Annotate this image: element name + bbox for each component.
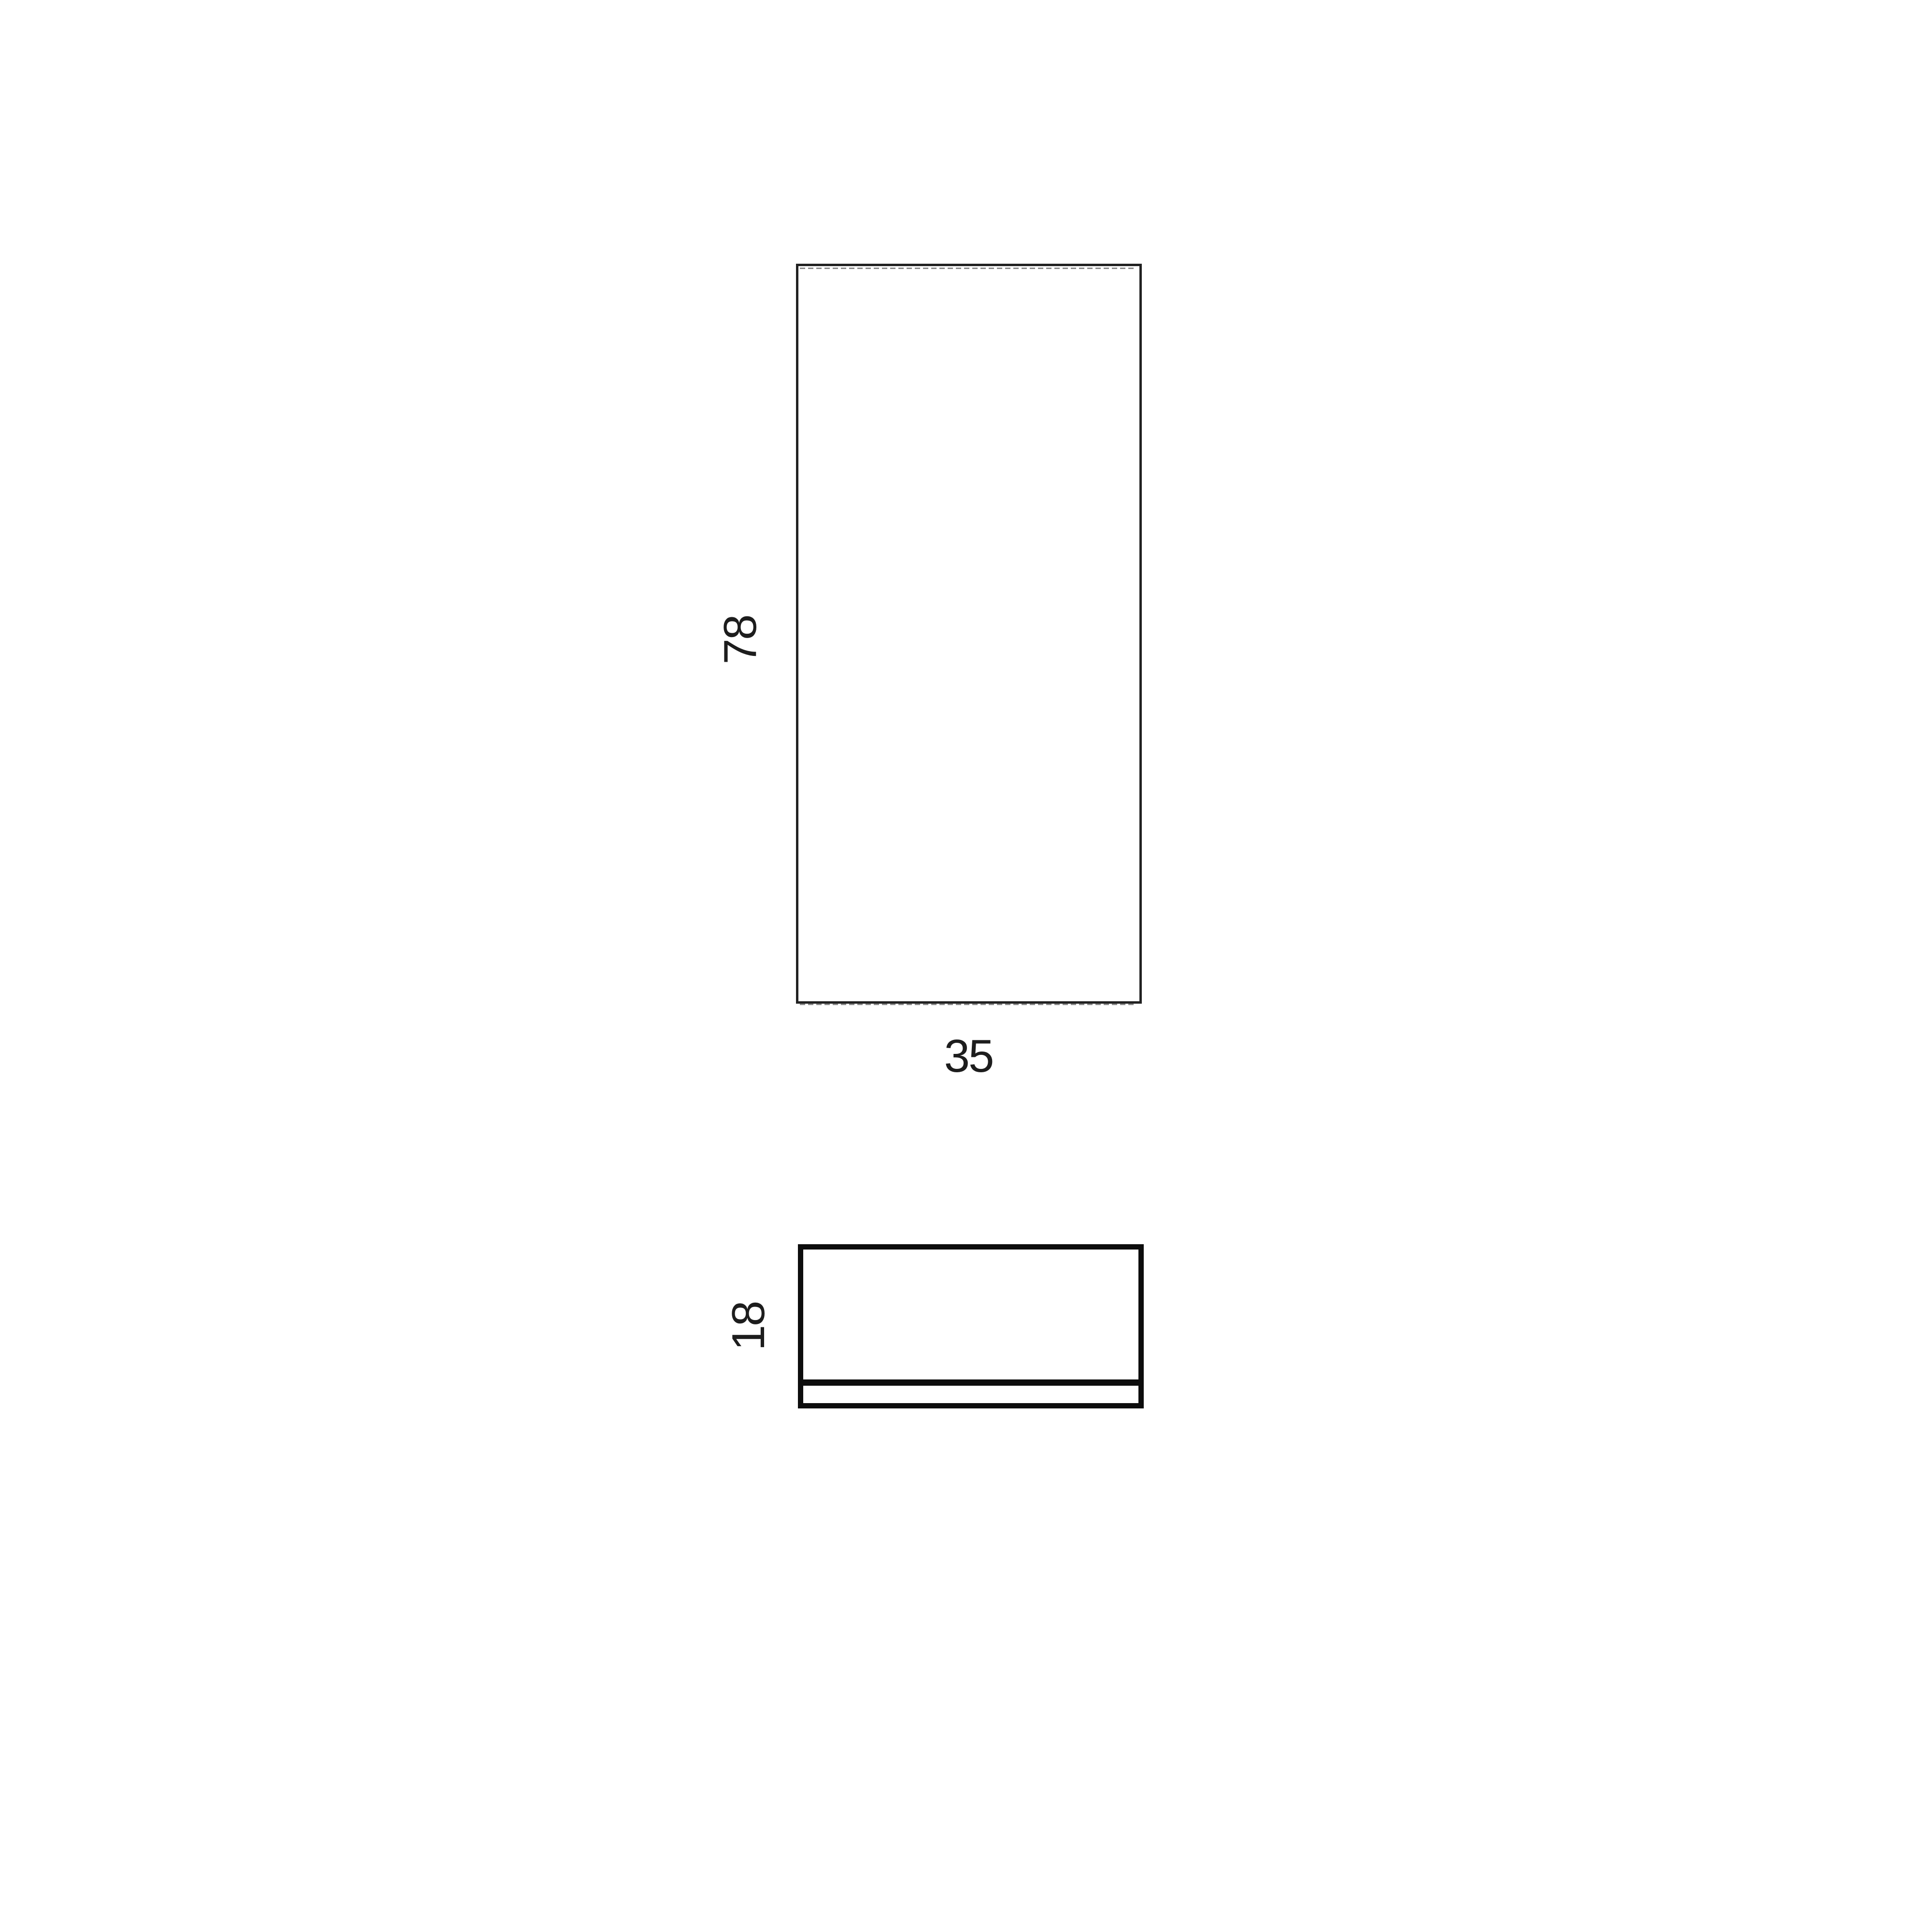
side-view-outline (798, 1244, 1144, 1408)
width-dimension-label: 35 (944, 1033, 993, 1080)
side-view-bottom-panel-line (803, 1379, 1138, 1386)
front-view-bottom-hidden-edge (800, 1004, 1134, 1005)
front-view-top-hidden-edge (800, 268, 1134, 269)
dimension-diagram: 78 35 18 (0, 0, 1932, 1932)
height-dimension-label: 78 (717, 616, 764, 665)
depth-dimension-label: 18 (725, 1302, 772, 1351)
front-view-outline (796, 264, 1142, 1004)
